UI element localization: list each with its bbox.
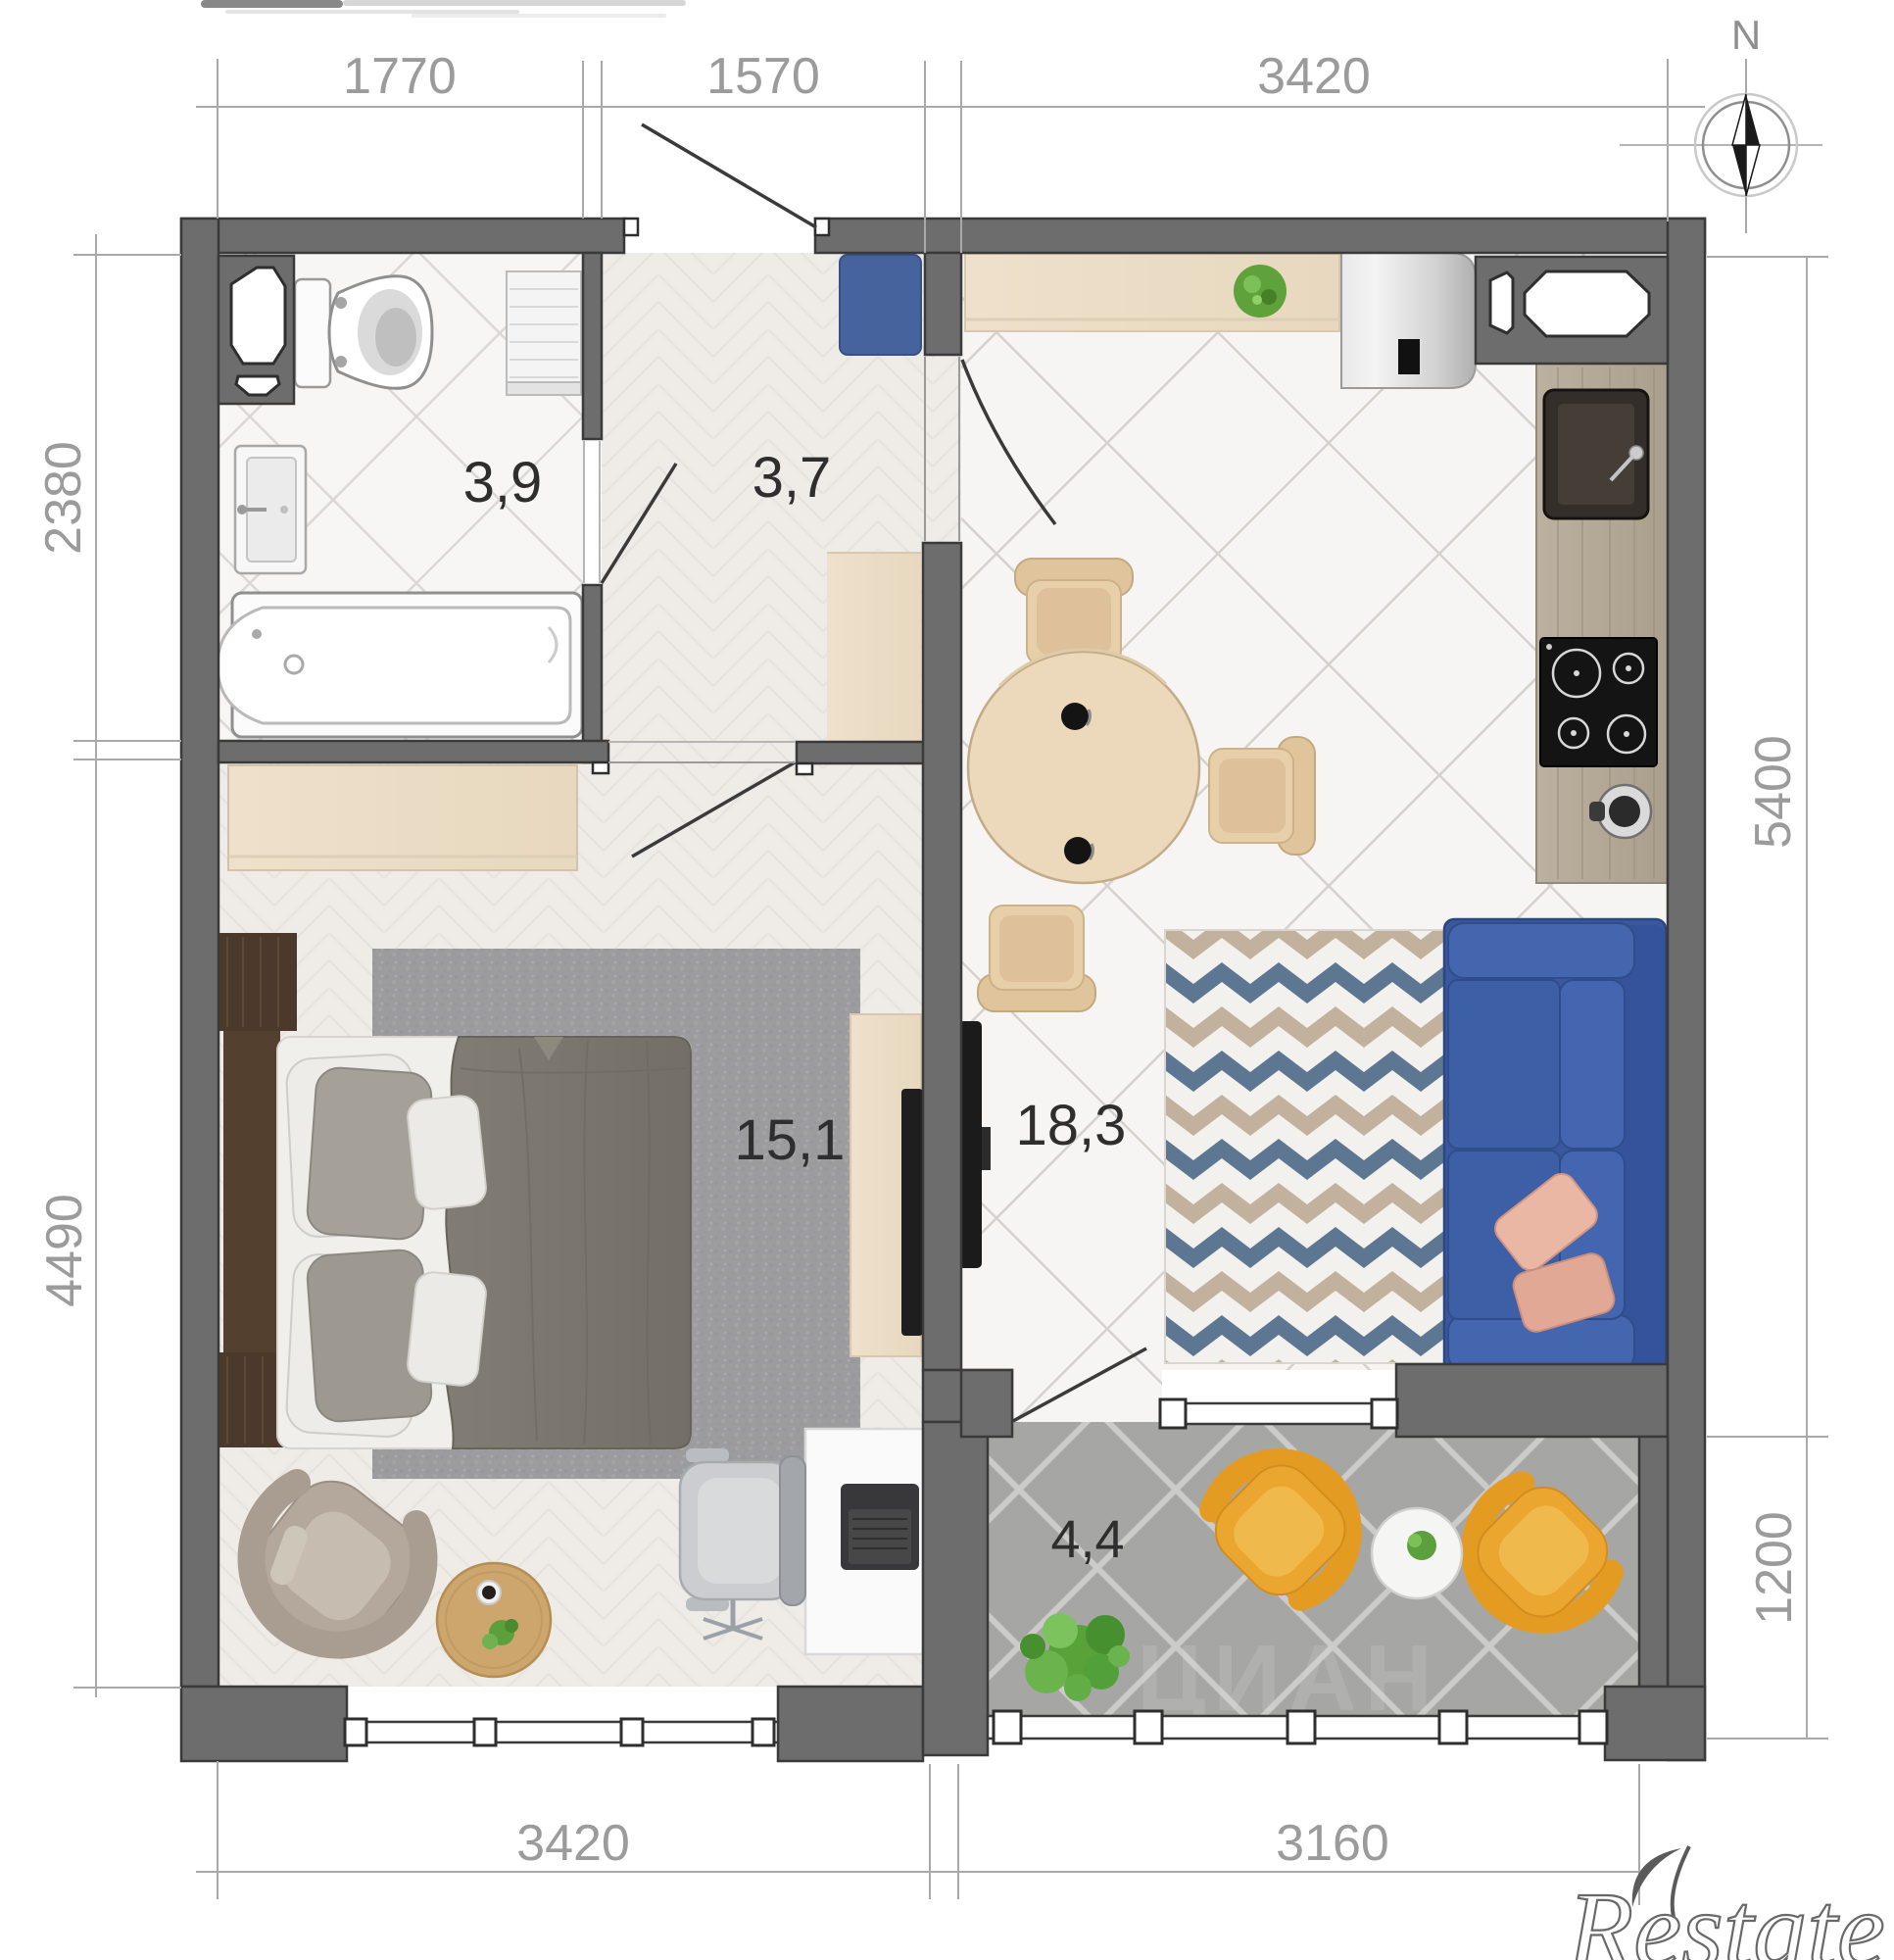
svg-text:2380: 2380 bbox=[35, 441, 92, 555]
svg-text:5400: 5400 bbox=[1745, 735, 1802, 849]
svg-text:4490: 4490 bbox=[36, 1194, 93, 1307]
svg-text:1570: 1570 bbox=[706, 48, 820, 105]
svg-text:4,4: 4,4 bbox=[1050, 1510, 1124, 1569]
svg-text:15,1: 15,1 bbox=[735, 1108, 846, 1172]
svg-text:3,9: 3,9 bbox=[463, 451, 543, 514]
svg-text:3,7: 3,7 bbox=[753, 446, 832, 510]
svg-text:1770: 1770 bbox=[343, 48, 457, 105]
svg-text:Restate: Restate bbox=[1567, 1870, 1885, 1960]
svg-text:1200: 1200 bbox=[1746, 1511, 1803, 1625]
svg-text:3420: 3420 bbox=[1257, 48, 1371, 105]
svg-text:3420: 3420 bbox=[516, 1815, 630, 1872]
svg-text:18,3: 18,3 bbox=[1016, 1094, 1127, 1157]
svg-text:3160: 3160 bbox=[1276, 1815, 1389, 1872]
svg-text:N: N bbox=[1731, 12, 1761, 58]
